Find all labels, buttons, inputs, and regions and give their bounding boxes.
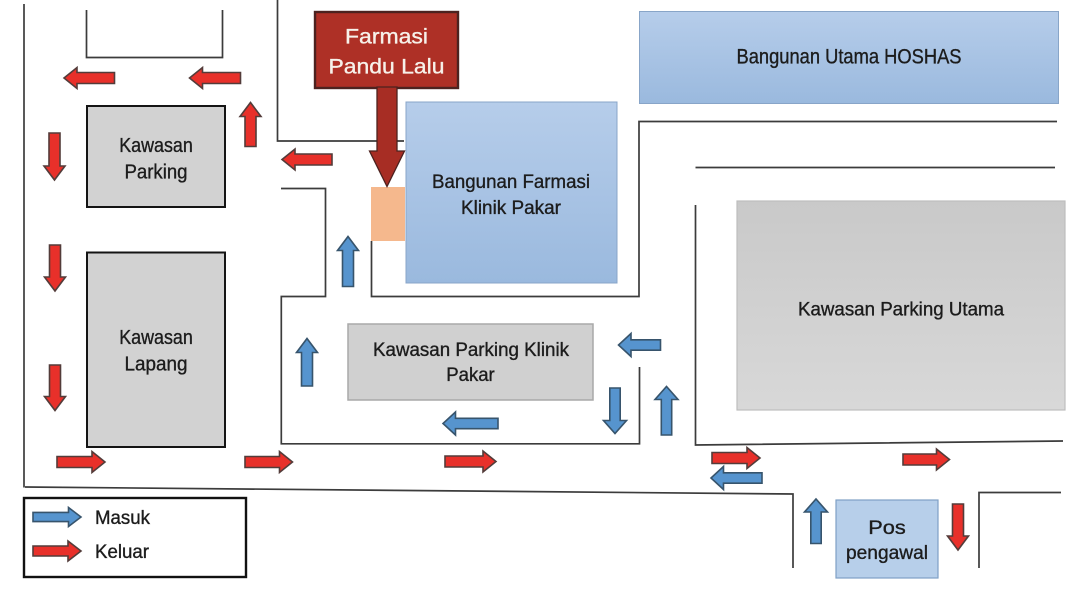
svg-text:Pakar: Pakar <box>446 365 495 386</box>
svg-text:Klinik Pakar: Klinik Pakar <box>461 197 561 219</box>
svg-text:pengawal: pengawal <box>846 542 928 564</box>
svg-text:Pandu Lalu: Pandu Lalu <box>329 56 445 79</box>
svg-text:Parking: Parking <box>125 162 188 184</box>
svg-text:Bangunan Utama HOSHAS: Bangunan Utama HOSHAS <box>737 46 962 69</box>
svg-text:Bangunan Farmasi: Bangunan Farmasi <box>432 171 590 193</box>
svg-text:Kawasan Parking Klinik: Kawasan Parking Klinik <box>373 340 569 361</box>
svg-text:Farmasi: Farmasi <box>345 26 428 49</box>
svg-text:Kawasan: Kawasan <box>119 327 193 349</box>
svg-text:Lapang: Lapang <box>125 354 188 376</box>
svg-text:Keluar: Keluar <box>95 542 150 563</box>
svg-text:Kawasan Parking Utama: Kawasan Parking Utama <box>798 300 1004 321</box>
svg-text:Masuk: Masuk <box>95 508 150 529</box>
svg-text:Pos: Pos <box>868 517 906 539</box>
svg-text:Kawasan: Kawasan <box>119 135 193 157</box>
